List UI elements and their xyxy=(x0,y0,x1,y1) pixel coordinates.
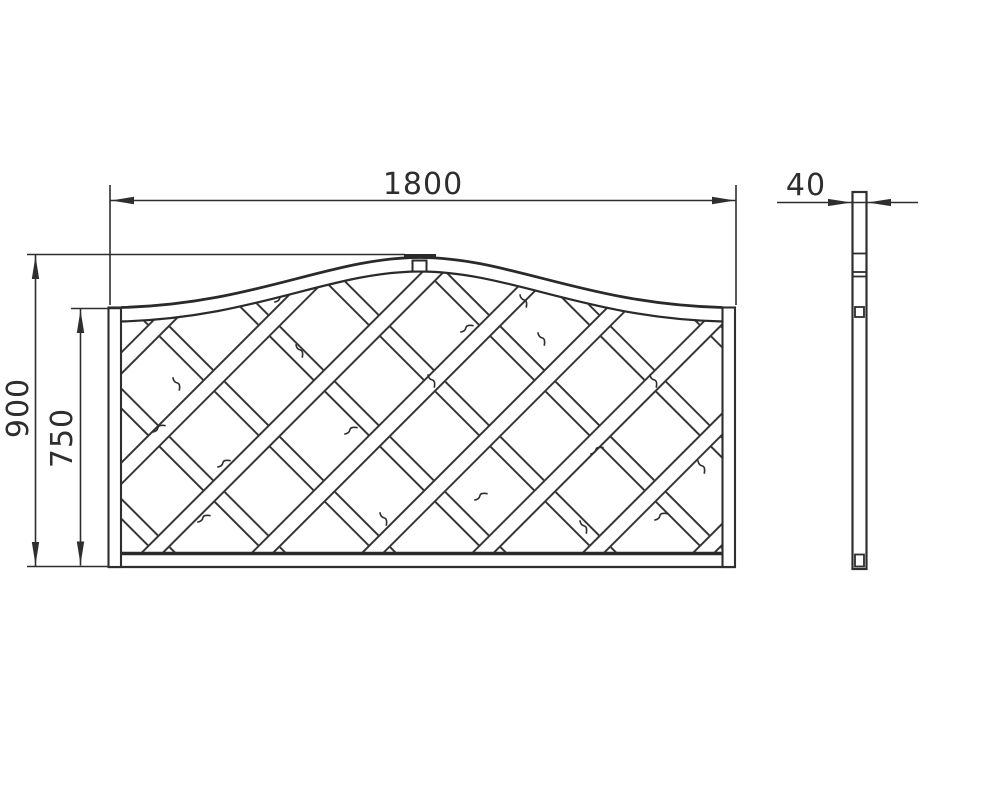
side-profile-board xyxy=(853,192,867,569)
dimension-thickness-40: 40 xyxy=(777,168,918,206)
arrowhead-bottom xyxy=(77,542,84,565)
arrowhead-right xyxy=(712,197,735,204)
arrowhead-right xyxy=(868,199,892,206)
dimension-label-thickness: 40 xyxy=(786,168,826,203)
dimension-label-width: 1800 xyxy=(383,167,463,202)
arrowhead-bottom xyxy=(32,542,39,565)
lattice-infill xyxy=(100,240,750,570)
arrowhead-top xyxy=(77,310,84,333)
dimension-label-overall-height: 900 xyxy=(1,378,36,438)
side-view xyxy=(853,192,867,569)
arrowhead-left xyxy=(111,197,134,204)
technical-drawing-canvas: 1800 900 750 40 xyxy=(0,0,1000,811)
dimension-label-lattice-height: 750 xyxy=(45,408,80,468)
front-view xyxy=(100,240,750,570)
fence-panel-drawing: 1800 900 750 40 xyxy=(0,0,1000,811)
centre-cap-block xyxy=(404,254,436,272)
left-stile xyxy=(109,308,122,568)
right-stile xyxy=(723,308,736,568)
arrowhead-top xyxy=(32,256,39,279)
arrowhead-left xyxy=(828,199,852,206)
bottom-rail xyxy=(108,554,736,568)
